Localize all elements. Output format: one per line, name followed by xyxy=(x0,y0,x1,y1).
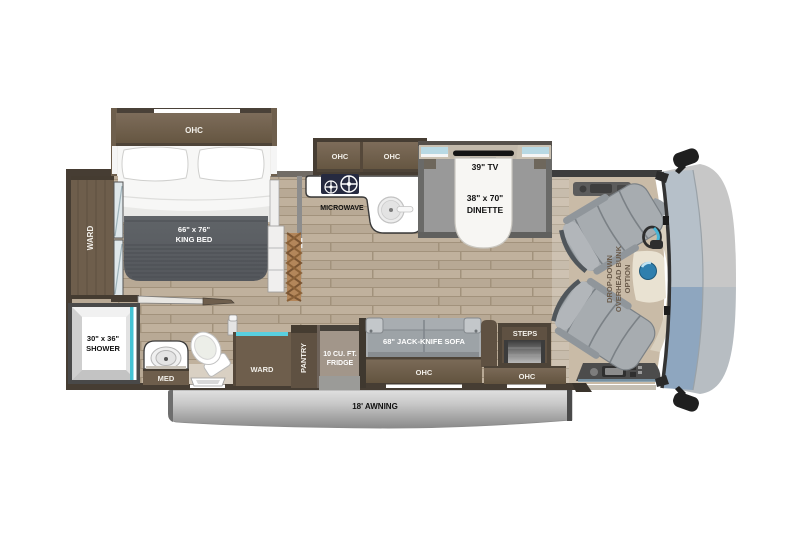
svg-text:MICROWAVE: MICROWAVE xyxy=(320,205,364,212)
svg-text:OHC: OHC xyxy=(519,372,536,381)
svg-text:DINETTE: DINETTE xyxy=(467,205,504,215)
svg-text:SHOWER: SHOWER xyxy=(86,344,120,353)
svg-text:38" x 70": 38" x 70" xyxy=(467,193,503,203)
svg-text:39" TV: 39" TV xyxy=(472,162,499,172)
svg-text:KING BED: KING BED xyxy=(176,235,213,244)
svg-text:OPTION: OPTION xyxy=(623,265,632,294)
svg-text:WARD: WARD xyxy=(86,226,95,251)
svg-text:30" x 36": 30" x 36" xyxy=(87,334,120,343)
svg-text:DROP-DOWN: DROP-DOWN xyxy=(605,255,614,303)
svg-text:68" JACK-KNIFE SOFA: 68" JACK-KNIFE SOFA xyxy=(383,337,465,346)
svg-text:MED: MED xyxy=(158,374,175,383)
svg-text:STEPS: STEPS xyxy=(513,329,538,338)
svg-text:18' AWNING: 18' AWNING xyxy=(352,402,398,411)
svg-text:PANTRY: PANTRY xyxy=(299,343,308,373)
svg-text:OHC: OHC xyxy=(416,368,433,377)
svg-text:OHC: OHC xyxy=(185,126,203,135)
svg-text:OHC: OHC xyxy=(332,152,349,161)
svg-text:OVERHEAD BUNK: OVERHEAD BUNK xyxy=(614,245,623,312)
svg-text:66" x 76": 66" x 76" xyxy=(178,225,211,234)
svg-text:FRIDGE: FRIDGE xyxy=(327,360,354,367)
svg-text:WARD: WARD xyxy=(251,365,274,374)
svg-text:OHC: OHC xyxy=(384,152,401,161)
svg-text:10 CU. FT.: 10 CU. FT. xyxy=(323,351,357,358)
